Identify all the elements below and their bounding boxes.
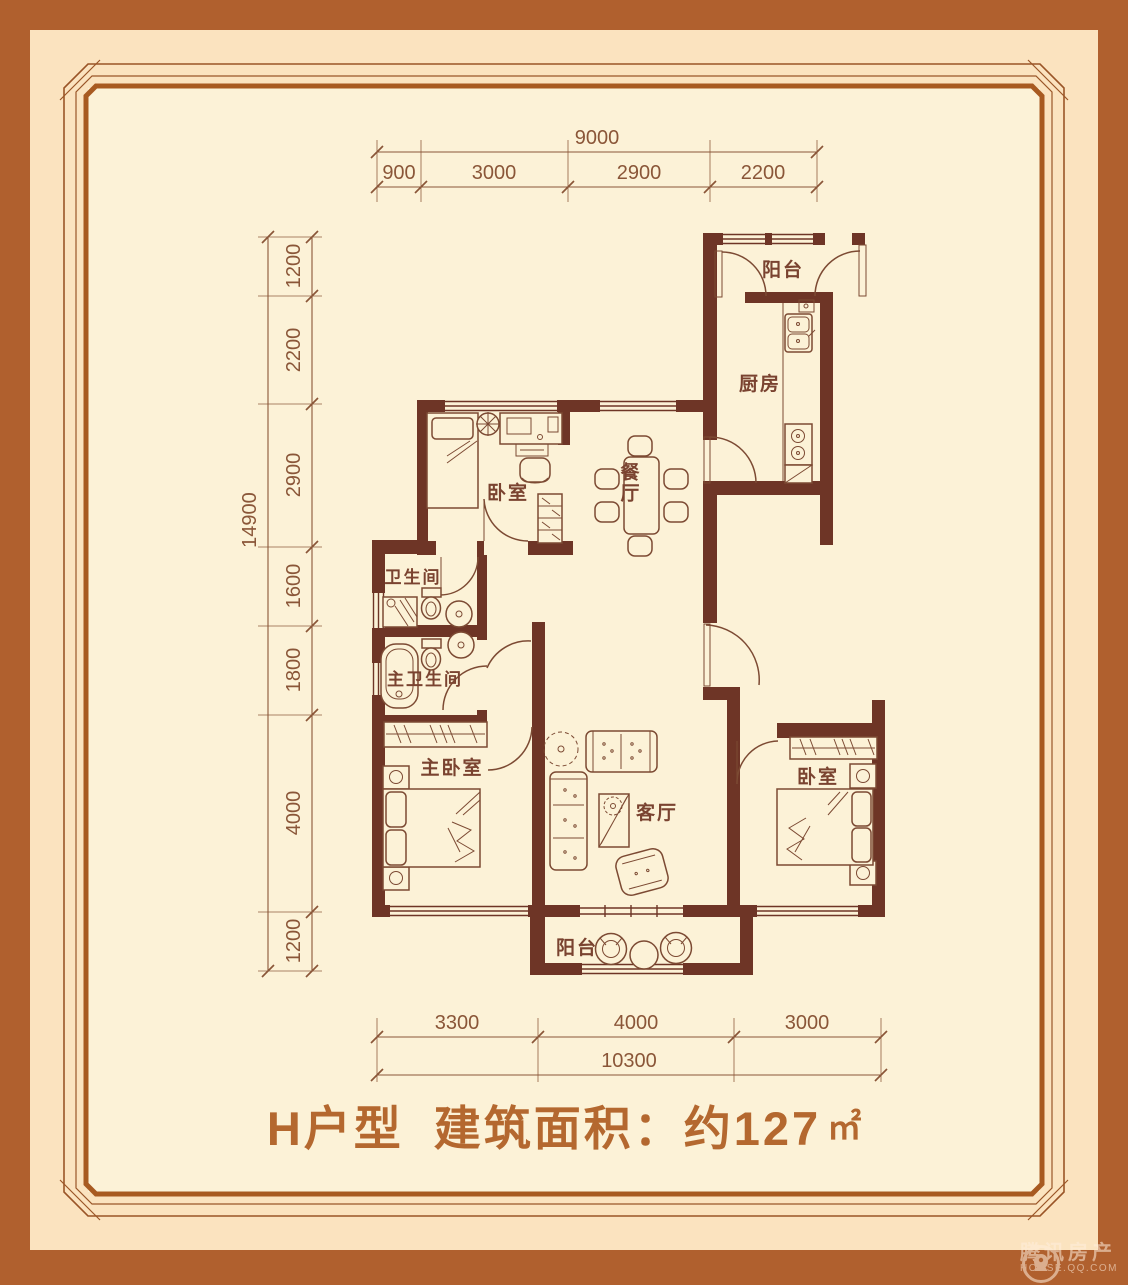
dim-left-seg: 4000 [283, 791, 305, 836]
window [772, 233, 813, 245]
window [757, 905, 858, 917]
right-bedroom-furniture [777, 737, 877, 885]
room-label-bathroom: 卫生间 [385, 567, 442, 587]
sliding-door [580, 905, 683, 917]
room-label-master-bathroom: 主卫生间 [387, 669, 463, 689]
dim-top-total: 9000 [575, 127, 620, 149]
dim-left-seg: 1800 [283, 648, 305, 693]
window [582, 963, 683, 975]
desk-chair [520, 458, 550, 483]
window [390, 905, 528, 917]
tencent-house-logo-icon [1020, 1243, 1062, 1285]
dim-bottom-seg: 4000 [614, 1012, 659, 1034]
room-label-dining: 餐厅 [618, 461, 640, 504]
area-unit: ㎡ [827, 1110, 861, 1147]
area-label: 建筑面积：约127 [434, 1102, 821, 1155]
dim-left-seg: 2900 [283, 453, 305, 498]
window [445, 400, 557, 412]
window [723, 233, 765, 245]
plan-type-label: H户型 [267, 1102, 404, 1155]
dim-bottom-seg: 3000 [785, 1012, 830, 1034]
dim-left-seg: 1200 [283, 919, 305, 964]
bed-top-bedroom [427, 413, 478, 508]
floorplan-page: { "colors": { "frame": "#b0602e", "band"… [0, 0, 1128, 1280]
plan-title: H户型建筑面积：约127㎡ [88, 1090, 1040, 1159]
dim-left-seg: 1200 [283, 244, 305, 289]
floor-plan-canvas: 9000 900 3000 2900 2200 14900 1200 2200 … [0, 0, 1128, 1280]
room-label-balcony-top: 阳台 [762, 258, 804, 281]
dim-bottom-seg: 3300 [435, 1012, 480, 1034]
dim-bottom-total: 10300 [601, 1050, 657, 1072]
room-label-kitchen: 厨房 [739, 372, 781, 395]
dim-top-seg: 900 [382, 162, 415, 184]
room-label-bedroom-right: 卧室 [797, 765, 839, 788]
dim-left-seg: 2200 [283, 328, 305, 373]
dim-top-seg: 2200 [741, 162, 786, 184]
room-label-living: 客厅 [636, 801, 678, 824]
room-label-bedroom-top: 卧室 [487, 481, 529, 504]
decorative-border [30, 30, 1098, 1250]
dim-left-total: 14900 [239, 492, 261, 548]
room-label-master-bedroom: 主卧室 [420, 756, 483, 779]
watermark: 腾讯房产 HOUSE.QQ.COM [1020, 1243, 1118, 1275]
dim-top-seg: 3000 [472, 162, 517, 184]
wardrobe-top-bedroom [538, 494, 562, 543]
window [600, 400, 676, 412]
dim-top-seg: 2900 [617, 162, 662, 184]
master-bedroom-furniture [383, 722, 487, 890]
dim-left-seg: 1600 [283, 564, 305, 609]
room-label-balcony-bottom: 阳台 [556, 936, 598, 959]
